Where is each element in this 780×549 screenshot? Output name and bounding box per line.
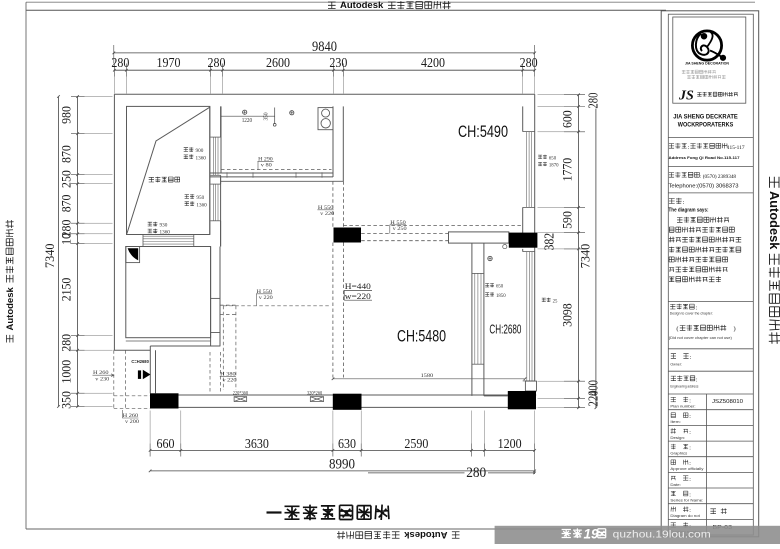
svg-text:250: 250 [60,170,74,188]
svg-text:Diagram do not: Diagram do not [670,514,699,518]
svg-text::: : [683,199,685,206]
svg-text:Design to cover the chapter:: Design to cover the chapter: [670,311,713,315]
svg-text:650: 650 [496,285,504,290]
svg-text:1000: 1000 [60,360,74,384]
svg-text:660: 660 [157,436,175,451]
svg-text:v 80: v 80 [261,162,273,168]
svg-text:7340: 7340 [42,244,57,268]
svg-text:1360: 1360 [196,202,207,208]
svg-text:The diagram says:: The diagram says: [669,207,709,213]
svg-text:320*260: 320*260 [307,391,323,396]
svg-text:870: 870 [60,145,74,163]
svg-text:630: 630 [338,436,356,451]
svg-text:590: 590 [561,211,575,229]
svg-text:1220: 1220 [242,118,252,124]
svg-text:1580: 1580 [421,373,434,379]
svg-text:1870: 1870 [549,164,559,169]
svg-text:2600: 2600 [266,55,290,70]
svg-text:3098: 3098 [561,303,575,327]
svg-text:v 220: v 220 [320,211,335,217]
svg-text:CH:5480: CH:5480 [397,328,446,346]
svg-text:w=220: w=220 [345,291,372,301]
svg-text:900: 900 [196,148,204,154]
svg-text:H=440: H=440 [345,281,372,291]
svg-text:650: 650 [549,156,557,161]
svg-text:280: 280 [60,334,74,352]
svg-text:7340: 7340 [578,244,593,269]
svg-text:350: 350 [60,391,74,409]
svg-text:3630: 3630 [245,436,269,451]
svg-text:350: 350 [264,112,270,120]
svg-text:950: 950 [196,195,204,201]
svg-text:Item:: Item: [670,420,681,424]
svg-text:9840: 9840 [312,39,337,55]
svg-text:220: 220 [586,390,601,406]
svg-text:Telephone:(0570) 3068373: Telephone:(0570) 3068373 [669,183,739,189]
svg-text:930: 930 [160,223,168,229]
svg-text:382: 382 [542,233,557,251]
svg-text:Autodesk: Autodesk [340,0,384,11]
svg-text:Owner:: Owner: [670,363,682,367]
svg-text:Approve officially: Approve officially [670,467,703,471]
svg-text:quzhou.19lou.com: quzhou.19lou.com [613,528,711,540]
svg-text:CH:5490: CH:5490 [458,123,508,141]
svg-text:Address Fong Qi Road No.115-11: Address Fong Qi Road No.115-117 [669,155,741,160]
svg-text:1850: 1850 [496,294,506,299]
svg-text:25: 25 [553,299,558,304]
svg-text:Graphics: Graphics [670,452,687,456]
svg-text:8990: 8990 [329,456,355,472]
svg-text:WOCKRPORATERKS: WOCKRPORATERKS [678,122,734,129]
svg-text:): ) [734,326,736,333]
svg-text:600: 600 [561,110,575,128]
svg-text:(Did not cover chapter can not: (Did not cover chapter can not use) [669,336,732,340]
svg-text:280: 280 [111,55,129,70]
svg-text:Engineering address: Engineering address [670,385,698,389]
svg-text:Date:: Date: [670,483,681,487]
svg-text:v 250: v 250 [393,226,408,232]
svg-text:Autodesk: Autodesk [5,287,16,331]
svg-text:280: 280 [208,55,226,70]
svg-text:1360: 1360 [160,230,171,236]
svg-text:CH:2680: CH:2680 [489,322,521,337]
svg-text:2150: 2150 [60,278,74,302]
svg-text:(: ( [676,326,678,333]
svg-text:980: 980 [60,106,74,124]
svg-text:v 220: v 220 [259,295,274,301]
svg-text:870: 870 [60,195,74,213]
svg-text:1770: 1770 [561,158,575,182]
svg-text:10: 10 [60,233,74,245]
svg-text:JIA SHENG DECORATION: JIA SHENG DECORATION [685,61,729,65]
svg-text:220*360: 220*360 [233,391,249,396]
svg-text:JS: JS [678,89,694,104]
svg-text:280: 280 [466,465,486,481]
svg-text:JSZ508010: JSZ508010 [712,399,743,405]
svg-text:115-117: 115-117 [727,145,745,151]
svg-text:: (0570) 2389348: : (0570) 2389348 [700,173,736,180]
svg-text:1200: 1200 [498,436,522,451]
svg-text:Design:: Design: [670,436,685,440]
svg-text:Series for Name:: Series for Name: [670,498,703,502]
svg-text:Plan number:: Plan number: [670,404,695,408]
svg-text:230: 230 [329,55,347,70]
svg-text:1360: 1360 [196,155,207,161]
svg-text:v 220: v 220 [223,378,238,384]
svg-text:1970: 1970 [157,55,181,70]
svg-text:280: 280 [586,92,601,108]
svg-text:v 200: v 200 [125,419,140,425]
svg-text:JIA SHENG DECKRATE: JIA SHENG DECKRATE [673,113,738,120]
svg-text:19: 19 [584,527,600,542]
svg-text:v 230: v 230 [95,376,110,382]
svg-text:2590: 2590 [404,436,428,451]
svg-text:280: 280 [520,55,538,70]
svg-text:4200: 4200 [421,55,445,70]
svg-text:Autodesk: Autodesk [767,191,780,250]
svg-text:C=H2680: C=H2680 [131,359,149,364]
svg-text:Autodesk: Autodesk [404,529,448,540]
